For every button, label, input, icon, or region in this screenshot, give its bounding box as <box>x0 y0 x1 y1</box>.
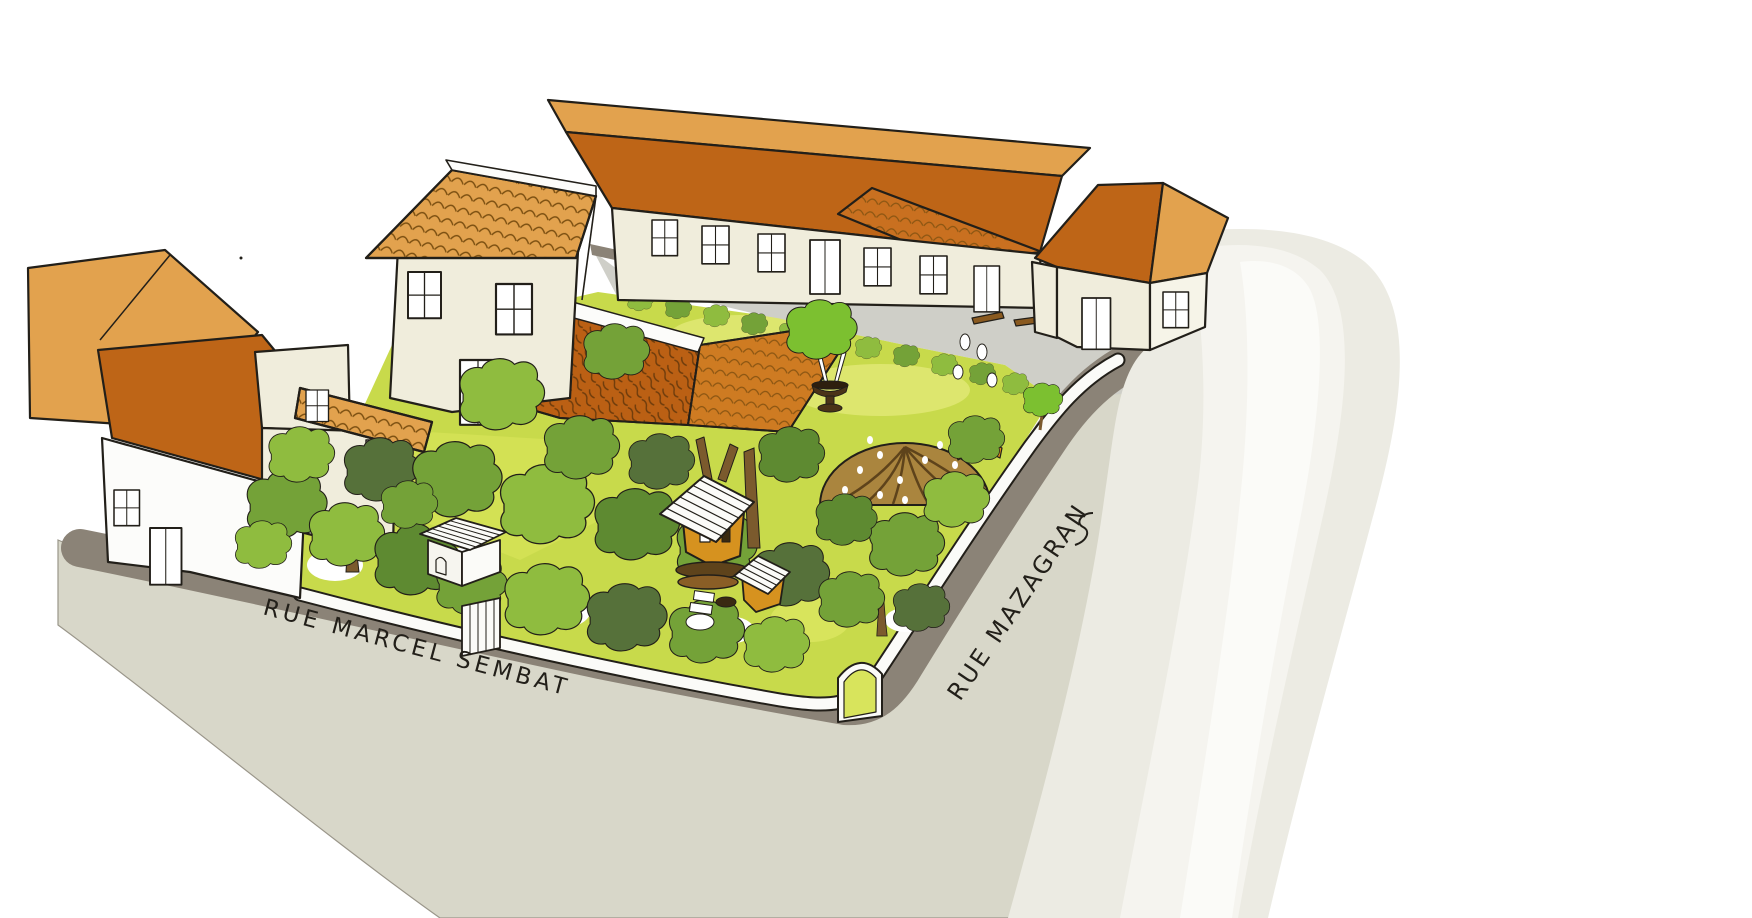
ink-speck <box>240 257 243 260</box>
site-illustration: RUE MARCEL SEMBAT RUE MAZAGRAN <box>0 0 1752 918</box>
corner-arch-entrance <box>838 663 882 722</box>
garden-gate <box>462 598 500 656</box>
site-sketch-canvas: RUE MARCEL SEMBAT RUE MAZAGRAN <box>0 0 1752 918</box>
